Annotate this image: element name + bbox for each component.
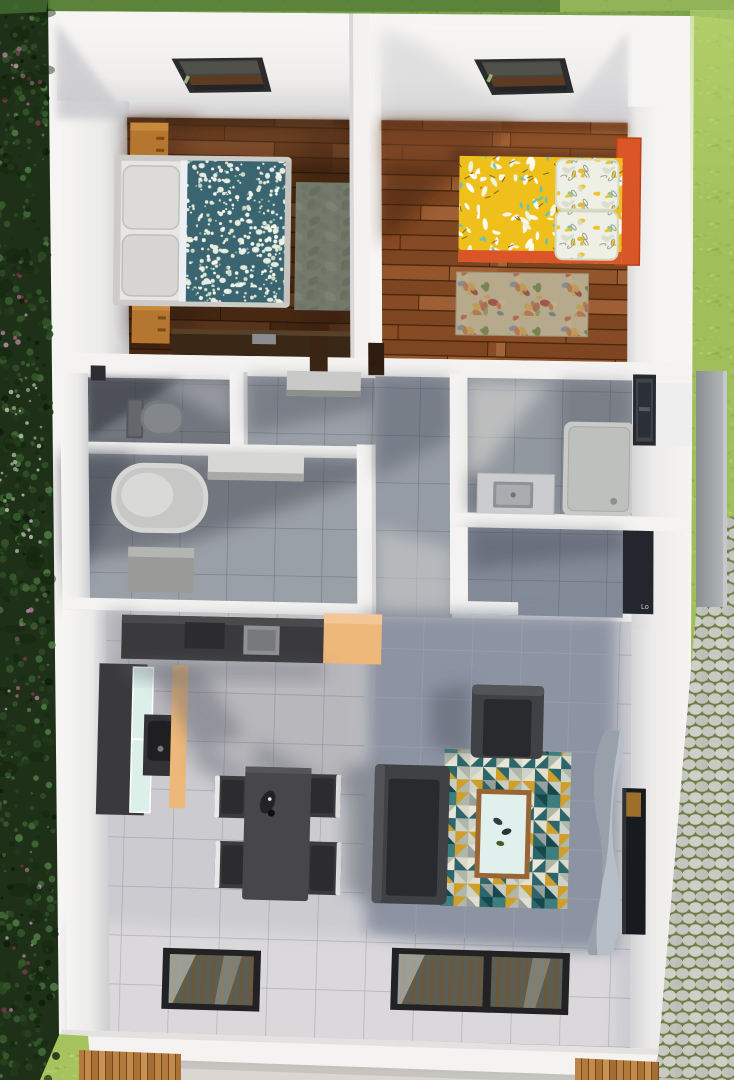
- svg-text:Lo: Lo: [641, 604, 649, 611]
